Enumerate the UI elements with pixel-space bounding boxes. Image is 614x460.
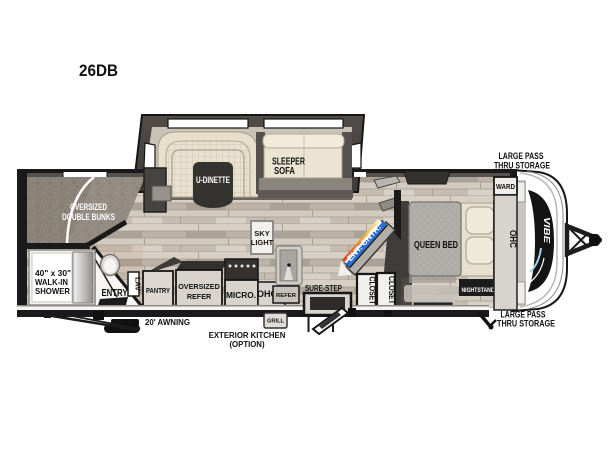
svg-text:SURE-STEP: SURE-STEP — [305, 283, 342, 293]
svg-text:WARD: WARD — [496, 184, 515, 191]
svg-text:(OPTION): (OPTION) — [229, 340, 264, 349]
svg-text:LAV: LAV — [134, 277, 141, 291]
svg-text:ENTRY: ENTRY — [102, 288, 128, 299]
svg-text:CLOSET: CLOSET — [368, 277, 377, 305]
svg-text:MICRO.: MICRO. — [226, 290, 256, 300]
svg-text:CLOSET: CLOSET — [387, 276, 396, 304]
svg-text:SHOWER: SHOWER — [35, 286, 70, 296]
svg-text:LARGE PASS: LARGE PASS — [499, 151, 544, 161]
svg-text:OVERSIZED: OVERSIZED — [178, 282, 220, 291]
svg-text:QUEEN BED: QUEEN BED — [414, 240, 458, 251]
svg-text:LIGHT: LIGHT — [251, 238, 274, 247]
svg-text:GRILL: GRILL — [267, 319, 284, 325]
svg-text:THRU STORAGE: THRU STORAGE — [497, 319, 555, 329]
svg-text:THRU STORAGE: THRU STORAGE — [494, 161, 550, 171]
svg-text:DOUBLE BUNKS: DOUBLE BUNKS — [62, 212, 115, 222]
svg-text:OVERSIZED: OVERSIZED — [70, 202, 107, 212]
svg-text:26DB: 26DB — [79, 61, 118, 80]
svg-text:PANTRY: PANTRY — [146, 288, 170, 295]
svg-text:SKY: SKY — [254, 229, 269, 238]
svg-text:SOFA: SOFA — [274, 165, 295, 177]
svg-text:OHC: OHC — [507, 230, 518, 248]
svg-text:NIGHTSTAND: NIGHTSTAND — [462, 287, 495, 294]
svg-text:VIBE: VIBE — [542, 217, 552, 243]
svg-text:20' AWNING: 20' AWNING — [145, 317, 190, 327]
svg-text:REFER: REFER — [276, 293, 296, 299]
svg-text:EXTERIOR KITCHEN: EXTERIOR KITCHEN — [209, 331, 286, 340]
svg-text:REFER: REFER — [187, 292, 212, 301]
svg-text:U-DINETTE: U-DINETTE — [196, 175, 230, 185]
